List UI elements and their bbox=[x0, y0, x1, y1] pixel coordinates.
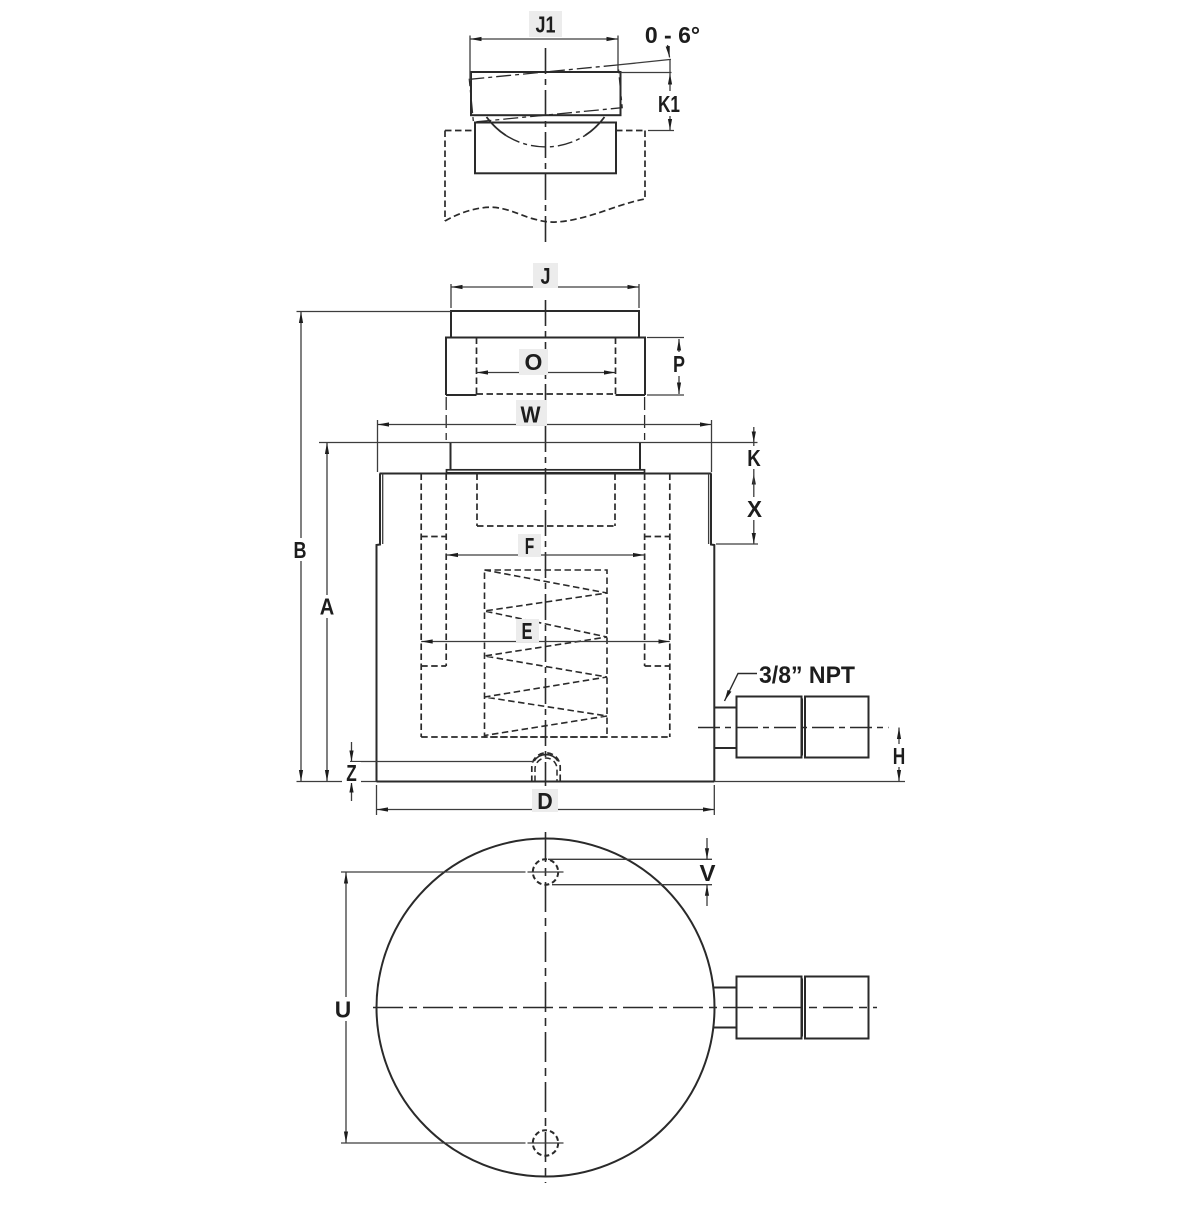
svg-text:V: V bbox=[700, 860, 717, 886]
svg-text:W: W bbox=[521, 402, 541, 428]
svg-text:H: H bbox=[893, 743, 906, 769]
svg-text:K: K bbox=[747, 445, 761, 471]
svg-text:F: F bbox=[525, 533, 535, 559]
svg-text:P: P bbox=[673, 351, 685, 377]
svg-text:A: A bbox=[320, 594, 335, 620]
svg-text:B: B bbox=[294, 537, 307, 563]
svg-text:J1: J1 bbox=[536, 12, 556, 38]
svg-text:J: J bbox=[541, 263, 551, 289]
svg-text:D: D bbox=[537, 788, 553, 814]
svg-text:3/8” NPT: 3/8” NPT bbox=[759, 662, 855, 689]
svg-text:E: E bbox=[522, 618, 533, 644]
svg-text:Z: Z bbox=[346, 760, 357, 786]
svg-text:X: X bbox=[747, 496, 763, 522]
svg-text:O: O bbox=[525, 349, 543, 375]
svg-text:0 - 6°: 0 - 6° bbox=[645, 22, 700, 48]
svg-text:U: U bbox=[335, 997, 352, 1023]
svg-text:K1: K1 bbox=[658, 91, 680, 117]
